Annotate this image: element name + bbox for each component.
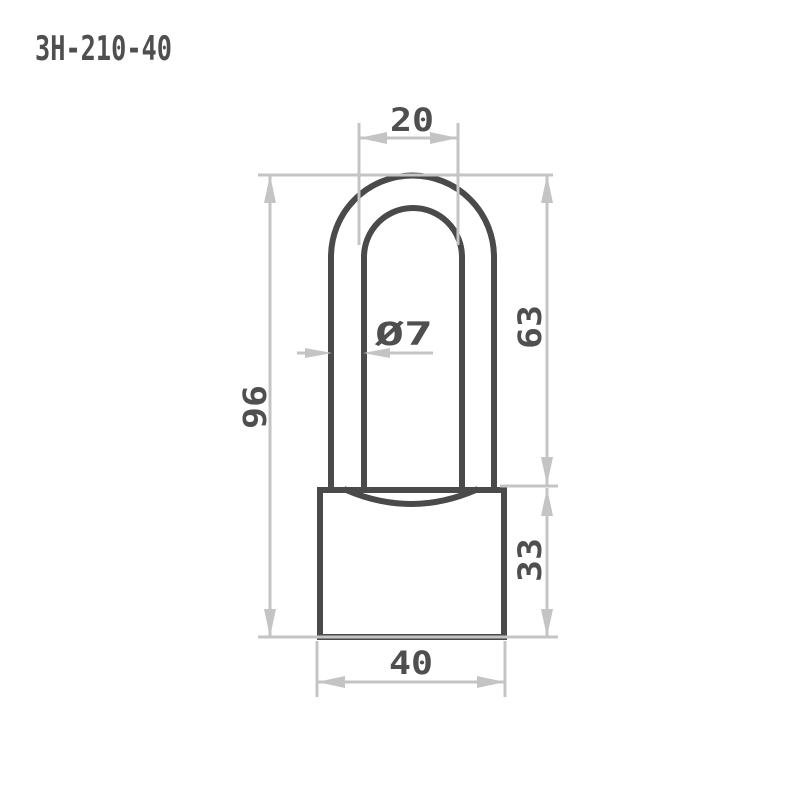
arrowhead <box>305 348 332 358</box>
arrowhead <box>359 132 387 144</box>
arrowhead <box>541 609 553 637</box>
arrowhead <box>264 609 276 637</box>
body-outline <box>320 490 504 637</box>
arrowhead <box>477 676 505 688</box>
arrowhead <box>541 175 553 203</box>
dim-label-body-height: 33 <box>511 538 549 582</box>
arrowhead <box>430 132 458 144</box>
arrowhead <box>264 175 276 203</box>
dim-label-shackle-wire-diameter: Ø7 <box>373 315 433 353</box>
drawing-title: ЗН-210-40 <box>35 29 172 69</box>
drawing-canvas: ЗН-210-40 20 Ø7 96 63 33 40 <box>0 0 800 800</box>
dim-label-overall-height: 96 <box>236 385 274 429</box>
arrowheads <box>264 132 553 688</box>
padlock-technical-drawing: ЗН-210-40 20 Ø7 96 63 33 40 <box>0 0 800 800</box>
arrowhead <box>541 488 553 516</box>
dim-label-shackle-height: 63 <box>511 305 549 349</box>
arrowhead <box>541 457 553 485</box>
dim-label-shackle-inner-width: 20 <box>390 101 434 139</box>
dim-label-body-width: 40 <box>389 644 433 682</box>
object-lines <box>320 176 504 638</box>
labels: ЗН-210-40 20 Ø7 96 63 33 40 <box>35 29 549 682</box>
arrowhead <box>317 676 345 688</box>
